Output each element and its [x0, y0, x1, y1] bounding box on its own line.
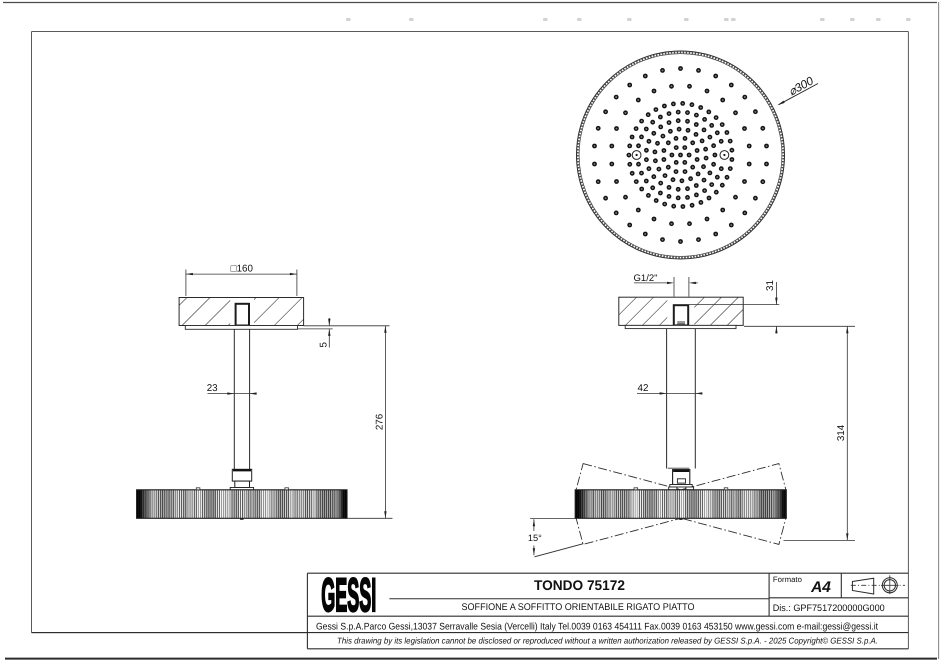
svg-text:G1/2": G1/2" [634, 273, 658, 284]
svg-text:GESSI: GESSI [321, 568, 376, 621]
svg-text:This drawing by its legislatio: This drawing by its legislation cannot b… [337, 635, 878, 645]
svg-text:15°: 15° [528, 533, 542, 543]
svg-text:□160: □160 [231, 263, 254, 274]
svg-text:276: 276 [374, 413, 385, 430]
svg-text:Formato: Formato [773, 575, 803, 584]
svg-text:31: 31 [765, 280, 776, 291]
svg-text:A4: A4 [810, 579, 831, 596]
svg-text:Dis.: GPF7517200000G000: Dis.: GPF7517200000G000 [773, 602, 885, 613]
svg-text:TONDO 75172: TONDO 75172 [534, 577, 625, 593]
svg-text:23: 23 [207, 383, 218, 394]
svg-text:Gessi S.p.A.Parco Gessi,13037: Gessi S.p.A.Parco Gessi,13037 Serravalle… [316, 622, 878, 633]
svg-text:5: 5 [318, 342, 329, 348]
svg-text:314: 314 [836, 424, 847, 441]
svg-text:42: 42 [638, 383, 649, 394]
svg-text:SOFFIONE A SOFFITTO ORIENTABIL: SOFFIONE A SOFFITTO ORIENTABILE RIGATO P… [462, 602, 695, 613]
